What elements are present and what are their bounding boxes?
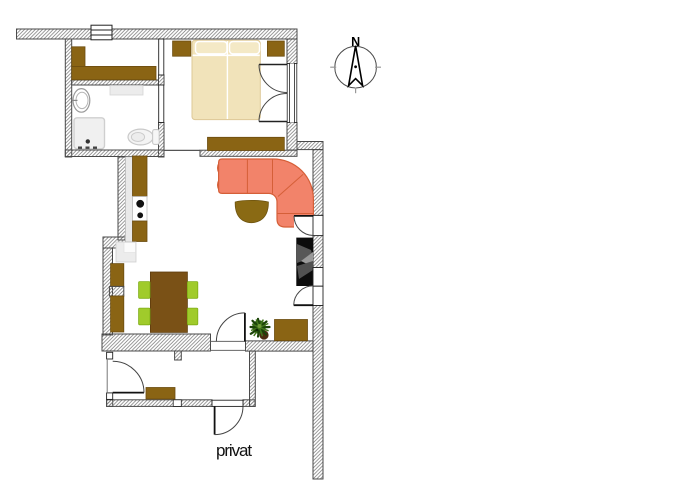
svg-text:privat: privat — [216, 441, 252, 460]
